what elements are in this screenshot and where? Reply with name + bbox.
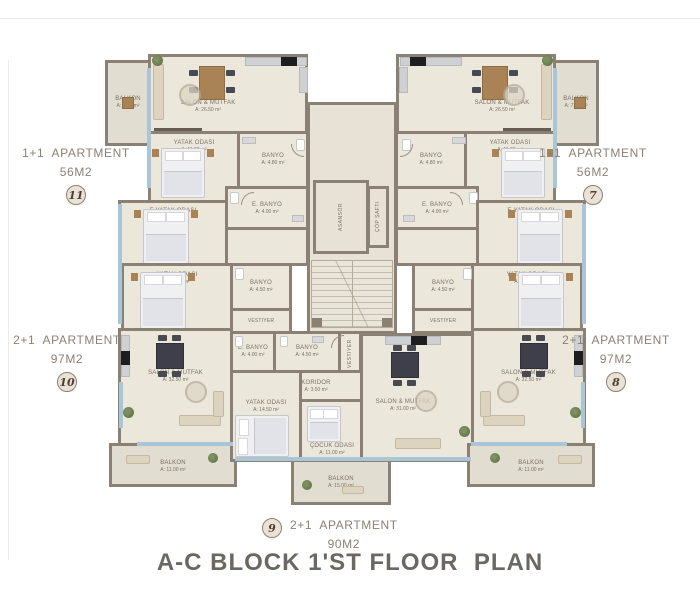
apartment-number-badge: 9 [262,518,282,538]
room-living-kitchen-apt7: SALON & MUTFAK A: 26.50 m² [396,54,556,134]
plant [123,407,134,418]
kitchen-stove [411,336,427,345]
nightstand [191,210,198,218]
rug [415,390,437,412]
room-label: YATAK ODASI [151,139,237,147]
plant [152,55,163,66]
chair [393,380,402,386]
caption-apartment-7: 1+1 APARTMENT 56M2 7 [523,144,663,205]
room-bathroom-apt8: BANYO A: 4.50 m² [412,263,474,311]
apartment-type: 2+1 APARTMENT [546,331,686,350]
room-garbage-shaft: ÇÖP ŞAFTI [367,186,389,248]
sink [292,215,304,222]
nightstand [508,210,515,218]
apartment-number-badge: 11 [66,185,86,205]
chair [407,380,416,386]
elevator-label: ASANSÖR [316,183,366,251]
apartment-type: 2+1 APARTMENT [0,331,134,350]
apartment-type: 1+1 APARTMENT [6,144,146,163]
chair [158,371,167,377]
chair [172,335,181,341]
room-area: A: 4.80 m² [398,160,464,167]
kitchen-counter [299,67,308,93]
room-master-bedroom-apt8: E.YATAK ODASI A: 16.00 m² [476,200,586,266]
apartment-size: 97M2 [0,350,134,369]
room-balcony-apt10: BALKON A: 11.00 m² [109,443,237,487]
chair [189,70,198,76]
apartment-size: 56M2 [6,163,146,182]
room-area: A: 4.50 m² [415,287,471,294]
window [137,442,233,446]
room-area: A: 11.00 m² [112,467,234,474]
balcony-lounge [126,455,150,464]
room-area: A: 4.80 m² [240,160,306,167]
apartment-size: 56M2 [523,163,663,182]
sofa [153,64,164,120]
window [582,204,586,324]
dining-table [520,343,548,369]
nightstand [152,149,159,157]
room-balcony-apt8: BALKON A: 11.00 m² [467,443,595,487]
room-label: YATAK ODASI [233,399,299,407]
toilet [280,336,288,347]
sofa [541,64,552,120]
stairs [311,260,393,328]
chair [226,70,235,76]
caption-apartment-8: 2+1 APARTMENT 97M2 8 [546,331,686,392]
plant [490,453,500,463]
nightstand [565,210,572,218]
floor-plan-drawing: ASANSÖR ÇÖP ŞAFTI BALKON A: 7.50 m² SALO… [95,52,609,507]
bed [161,148,205,198]
floor-plan-page: { "title": "A-C BLOCK 1'ST FLOOR PLAN", … [0,0,700,600]
plant [302,480,312,490]
chair [472,70,481,76]
dining-table [199,66,225,100]
nightstand [509,273,516,281]
rug [503,84,525,106]
room-label: SALON & MUTFAK [158,99,258,107]
toilet [230,192,239,204]
nightstand [566,273,573,281]
sofa [213,391,224,417]
bed [140,272,186,329]
window [118,204,122,324]
sink [312,336,324,343]
chair [393,345,402,351]
bed [518,272,564,329]
room-bathroom-apt11: BANYO A: 4.80 m² [237,131,309,189]
kitchen-stove [410,57,426,66]
stairs-post [312,318,322,327]
nightstand [131,273,138,281]
sofa [480,391,491,417]
apartment-type: 2+1 APARTMENT [290,516,398,535]
rug [179,84,201,106]
room-balcony-apt9: BALKON A: 15.00 m² [291,459,391,505]
caption-text-block: 2+1 APARTMENT 90M2 [290,516,398,553]
plan-title: A-C BLOCK 1'ST FLOOR PLAN [0,549,700,577]
room-bathroom-apt9: BANYO A: 4.50 m² [273,331,341,373]
chair [522,335,531,341]
room-elevator: ASANSÖR [313,180,369,254]
dining-table [391,352,419,378]
room-ensuite-bath-apt10: E. BANYO A: 4.00 m² [225,186,309,230]
sofa [395,438,441,449]
nightstand [188,273,195,281]
kitchen-counter [399,67,408,93]
room-label: BANYO [415,279,471,287]
kitchen-stove [281,57,297,66]
plant [459,426,470,437]
room-area: A: 32.50 m² [121,377,230,384]
balcony-lounge [558,455,582,464]
garbage-shaft-label: ÇÖP ŞAFTI [370,189,386,245]
room-label: E. BANYO [398,201,476,209]
chair [172,371,181,377]
page-border-top [0,18,700,19]
window [235,457,471,461]
chair [472,87,481,93]
balcony-table [574,97,586,109]
sink [403,215,415,222]
apartment-number-badge: 8 [606,372,626,392]
bed [307,406,341,442]
stairs-divider [352,261,353,327]
chair [536,335,545,341]
balcony-table [122,97,134,109]
room-living-kitchen-apt11: SALON & MUTFAK A: 26.50 m² [148,54,308,134]
room-bathroom-apt10: BANYO A: 4.50 m² [230,263,292,311]
room-kids-room-apt9: ÇOCUK ODASI A: 11.00 m² [299,399,365,462]
room-balcony-apt7: BALKON A: 7.50 m² [553,60,599,146]
sink [452,137,466,144]
room-wardrobe-apt8: VESTIYER [412,308,474,334]
rug [497,381,519,403]
room-area: A: 4.00 m² [233,352,273,359]
caption-apartment-11: 1+1 APARTMENT 56M2 11 [6,144,146,205]
bed [143,209,189,264]
window [147,138,151,188]
room-label: VESTIYER [233,318,289,325]
page-border-left [8,60,9,560]
plant [542,55,553,66]
room-area: A: 4.50 m² [233,287,289,294]
toilet [235,336,243,347]
room-area: A: 26.50 m² [452,107,552,114]
plant [208,453,218,463]
room-bedroom-apt9: YATAK ODASI A: 14.50 m² [230,370,302,462]
room-balcony-apt11: BALKON A: 7.50 m² [105,60,151,146]
chair [522,371,531,377]
chair [509,70,518,76]
caption-apartment-10: 2+1 APARTMENT 97M2 10 [0,331,134,392]
apartment-number-badge: 10 [57,372,77,392]
kitchen-counter [245,57,307,66]
window [553,68,557,138]
room-label: E. BANYO [228,201,306,209]
chair [407,345,416,351]
bed [517,209,563,264]
window [147,68,151,138]
room-ensuite-bath-apt9: E. BANYO A: 4.00 m² [230,331,276,373]
room-area: A: 14.50 m² [233,407,299,414]
room-label: VESTIYER [415,318,471,325]
room-master-bedroom-apt10: E.YATAK ODASI A: 16.00 m² [118,200,228,266]
room-ensuite-bath-apt8: E. BANYO A: 4.00 m² [395,186,479,230]
apartment-size: 97M2 [546,350,686,369]
toilet [463,268,472,280]
room-hall-apt10 [225,227,309,266]
room-living-kitchen-apt10: SALON & MUTFAK A: 32.50 m² [118,328,233,446]
plant [570,407,581,418]
room-bedroom-apt10: YATAK ODASI A: 11.50 m² [121,263,233,331]
nightstand [134,210,141,218]
rug [185,381,207,403]
stairs-post [382,318,392,327]
room-label: SALON & MUTFAK [452,99,552,107]
room-area: A: 4.50 m² [276,352,338,359]
room-label: ÇOCUK ODASI [302,442,362,450]
room-bedroom-apt8: YATAK ODASI A: 11.50 m² [471,263,583,331]
toilet [235,268,244,280]
apartment-type: 1+1 APARTMENT [523,144,663,163]
window [471,442,567,446]
chair [158,335,167,341]
room-bathroom-apt7: BANYO A: 4.80 m² [395,131,467,189]
nightstand [207,149,214,157]
bed [235,415,289,457]
apartment-number-badge: 7 [583,185,603,205]
nightstand [492,149,499,157]
sink [242,137,256,144]
room-area: A: 26.50 m² [158,107,258,114]
chair [226,87,235,93]
room-living-kitchen-apt9: SALON & MUTFAK A: 31.00 m² [360,333,476,462]
balcony-lounge [342,486,364,494]
room-hall-apt8 [395,227,479,266]
room-label: BANYO [233,279,289,287]
dining-table [156,343,184,369]
chair [536,371,545,377]
caption-apartment-9: 9 2+1 APARTMENT 90M2 [262,516,398,553]
room-area: A: 11.00 m² [470,467,592,474]
